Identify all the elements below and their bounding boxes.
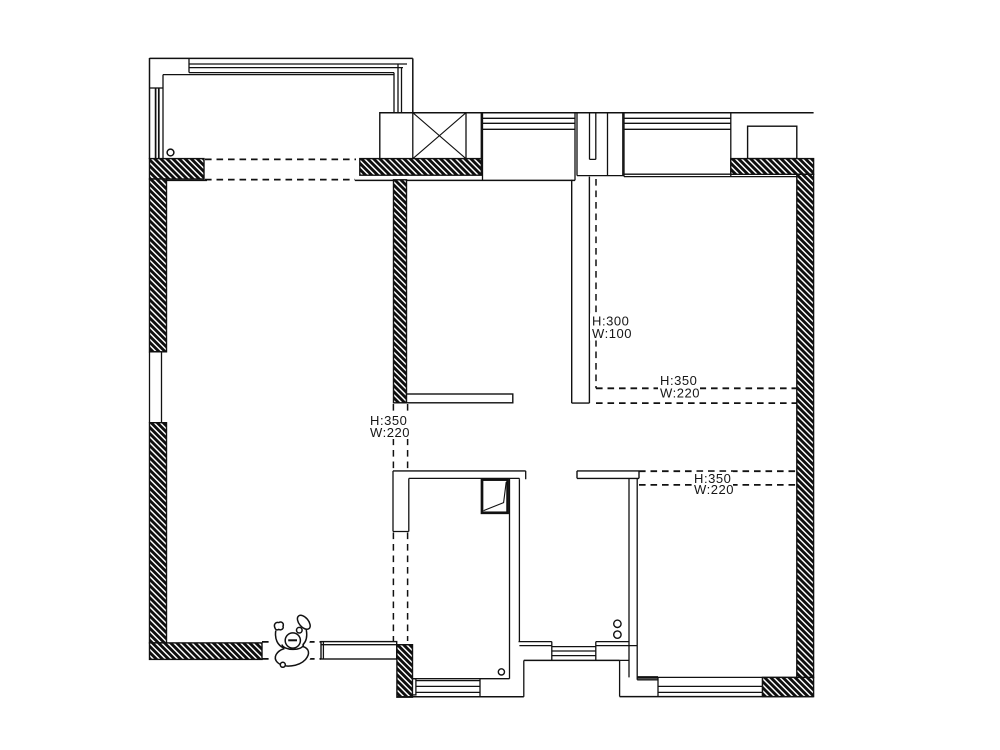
svg-text:W:220: W:220	[694, 482, 734, 497]
svg-text:W:220: W:220	[370, 425, 410, 440]
svg-text:W:220: W:220	[660, 385, 700, 400]
svg-text:W:100: W:100	[592, 326, 632, 341]
